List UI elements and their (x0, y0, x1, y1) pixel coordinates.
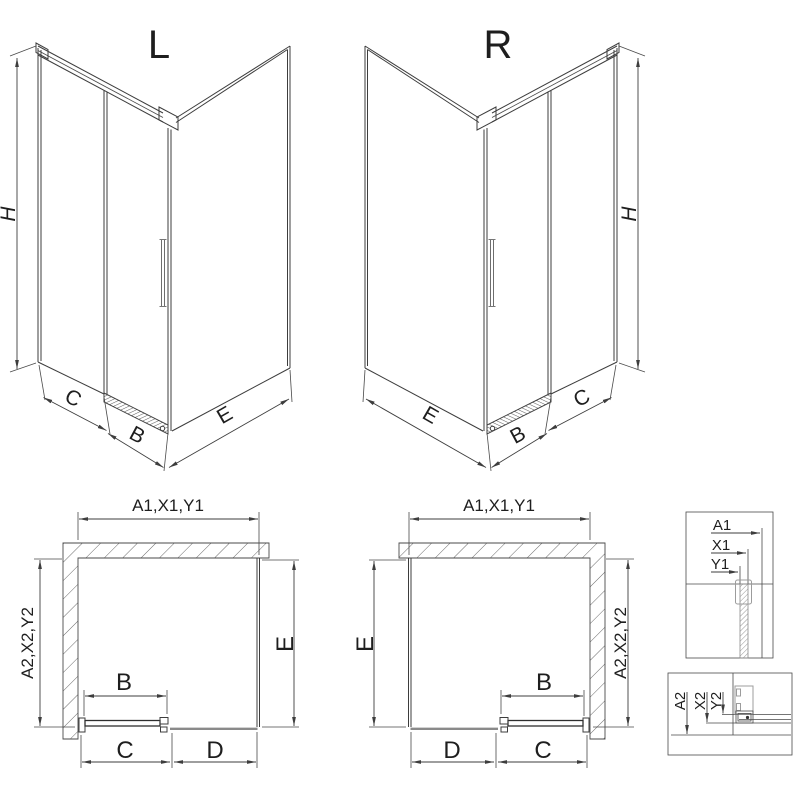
plan-view-right: A1,X1,Y1 A2,X2,Y2 E B C D (352, 496, 634, 768)
plan-right-wall-hatch (399, 543, 605, 739)
plan-right-dim-b-label: B (536, 669, 552, 696)
iso-right-dim-c-label: C (570, 385, 594, 412)
detail-width-reference: A1 X1 Y1 (686, 512, 773, 658)
plan-right-dim-d-label: D (443, 737, 460, 764)
plan-left-dim-c-label: C (116, 737, 133, 764)
iso-left-dim-b-label: B (125, 422, 148, 449)
detail-x1-label: X1 (712, 537, 730, 554)
iso-left-title: L (148, 23, 170, 67)
iso-right-title: R (484, 23, 513, 67)
iso-view-right: R H C B E (363, 23, 645, 471)
detail-y1-label: Y1 (711, 556, 729, 573)
plan-right-depth-dim-label: A2,X2,Y2 (611, 607, 630, 679)
iso-left-dim-c-label: C (61, 385, 85, 412)
iso-view-left: L H C B E (0, 23, 292, 471)
detail-depth-reference: A2 X2 Y2 (668, 673, 792, 755)
iso-left-dim-h-label: H (0, 206, 20, 222)
iso-right-dim-e-label: E (418, 402, 442, 429)
detail-y2-label: Y2 (708, 692, 725, 710)
plan-left-dim-e-label: E (272, 636, 299, 652)
plan-left-depth-dim-label: A2,X2,Y2 (18, 607, 37, 679)
plan-left-dim-b-label: B (116, 669, 132, 696)
plan-left-wall-hatch (63, 543, 269, 739)
iso-left-dim-e-label: E (213, 402, 237, 429)
shower-enclosure-technical-drawing: L H C B E R H C B E A1,X1,Y1 A2,X2,Y2 E … (0, 0, 800, 800)
iso-right-dim-b-label: B (506, 422, 529, 449)
plan-left-width-dim-label: A1,X1,Y1 (132, 496, 204, 515)
drawing-canvas: L H C B E R H C B E A1,X1,Y1 A2,X2,Y2 E … (0, 0, 800, 800)
detail-a2-label: A2 (672, 692, 689, 710)
iso-right-dim-h-label: H (618, 206, 641, 222)
plan-right-dim-c-label: C (534, 737, 551, 764)
detail-x2-label: X2 (692, 692, 709, 710)
plan-view-left: A1,X1,Y1 A2,X2,Y2 E B C D (18, 496, 299, 768)
plan-right-width-dim-label: A1,X1,Y1 (463, 496, 535, 515)
detail-a1-label: A1 (713, 517, 731, 534)
plan-left-dim-d-label: D (206, 737, 223, 764)
plan-right-dim-e-label: E (352, 636, 379, 652)
